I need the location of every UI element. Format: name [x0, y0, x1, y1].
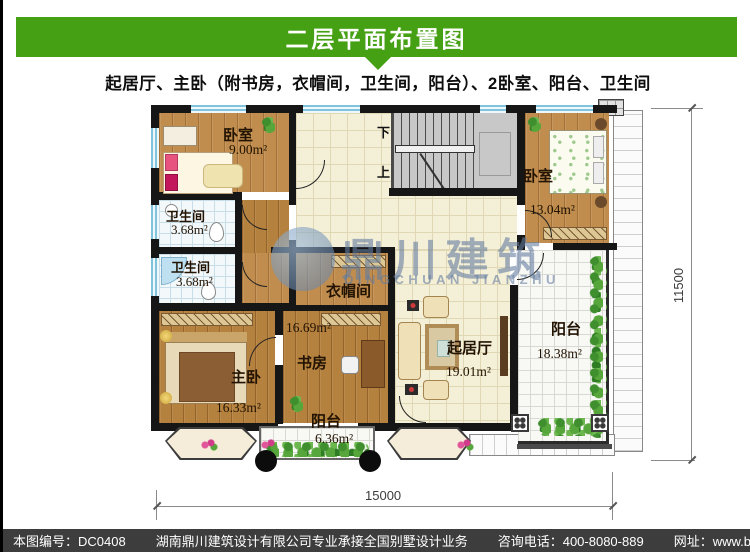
wall-bedroomtr-left-a: [517, 105, 525, 205]
window-left-3: [151, 258, 159, 296]
wardrobe-hatch-cloak: [331, 255, 386, 268]
column-circle: [359, 450, 381, 472]
column-marker: [511, 414, 529, 432]
wardrobe-hatch-bedroom-tr: [543, 227, 607, 240]
wall-hall-divider-upper: [289, 105, 296, 205]
toilet: [209, 222, 224, 242]
wall-study-living: [388, 247, 395, 424]
wall-master-study-b: [275, 365, 283, 424]
plant-icon: [527, 117, 542, 132]
wall-cloak-study: [290, 305, 394, 311]
tv-cabinet: [500, 316, 508, 376]
room-area-balcony-bottom: 6.36m²: [315, 431, 353, 447]
side-table-plant: [407, 300, 419, 311]
sofa-chair: [423, 296, 449, 318]
rug: [203, 164, 243, 188]
bed-pillow: [593, 136, 604, 158]
wall-bedroomtr-bottom: [553, 243, 617, 250]
room-area-bedroom-tl: 9.00m²: [229, 142, 267, 158]
floor-plan-page: 二层平面布置图 起居厅、主卧（附书房，衣帽间，卫生间，阳台）、2卧室、阳台、卫生…: [0, 0, 750, 552]
wall-bedroomtr-left-b: [517, 235, 525, 250]
website: 网址：www.bstzcs.com: [674, 531, 750, 550]
bed-master-headboard: [165, 332, 247, 343]
room-label-master: 主卧: [231, 366, 261, 387]
room-area-master: 16.33m²: [216, 400, 261, 416]
stair-landing-outline: [479, 132, 511, 176]
dim-line-bottom: [156, 506, 613, 507]
room-area-study: 16.69m²: [286, 320, 331, 336]
wardrobe-hatch-master: [161, 313, 253, 326]
railing-balcony-bottom: [517, 444, 612, 449]
nightstand: [595, 118, 607, 130]
sofa-chair: [423, 380, 449, 400]
flower-icon: [455, 438, 475, 452]
wall-cloak-top: [271, 247, 394, 253]
dim-height-label: 11500: [671, 268, 686, 303]
sofa-long: [398, 322, 421, 380]
dresser: [163, 126, 197, 146]
room-label-cloakroom: 衣帽间: [326, 280, 371, 301]
dim-ext-bottom-right: [612, 472, 613, 520]
column-marker: [591, 414, 609, 432]
bed-pillow: [165, 154, 178, 171]
window-left-2: [151, 205, 159, 239]
flower-icon: [199, 438, 219, 452]
dim-width-label: 15000: [365, 488, 401, 503]
window-top-2: [303, 105, 360, 113]
dim-tick: [609, 502, 617, 510]
stairs-up-label: 上: [377, 162, 390, 181]
room-label-balcony-right: 阳台: [551, 318, 581, 339]
side-table-plant: [405, 384, 418, 395]
room-area-bath1: 3.68m²: [171, 222, 208, 238]
dim-line-right: [691, 108, 692, 460]
stair-handrail: [395, 145, 475, 153]
room-label-balcony-bottom: 阳台: [311, 410, 341, 431]
title-banner: 二层平面布置图: [16, 17, 737, 57]
phone-number: 咨询电话：400-8080-889: [498, 531, 644, 550]
stairs-down-label: 下: [377, 122, 390, 141]
room-label-living: 起居厅: [447, 337, 492, 358]
dim-ext-right-top: [651, 108, 703, 109]
plant-icon: [261, 117, 277, 133]
page-title: 二层平面布置图: [286, 20, 468, 54]
wall-master-study-a: [275, 311, 283, 335]
right-eave: [613, 110, 643, 452]
drawing-number: 本图编号：DC0408: [13, 531, 126, 550]
room-area-bedroom-tr: 13.04m²: [530, 202, 575, 218]
wall-stairs-bottom: [389, 188, 517, 196]
column-circle: [255, 450, 277, 472]
room-area-bath2: 3.68m²: [176, 274, 213, 290]
stair-edge-line: [391, 110, 393, 188]
wall-living-balcony: [510, 285, 518, 424]
bed-pillow: [165, 174, 178, 191]
room-label-bedroom-tr: 卧室: [523, 165, 553, 186]
window-top-1: [191, 105, 246, 113]
desk: [361, 340, 385, 388]
balcony-right-plants-strip: [589, 256, 607, 438]
bed-master-blanket: [179, 352, 235, 402]
banner-arrow-icon: [365, 57, 391, 70]
wall-bath1-bath2: [151, 247, 242, 254]
balcony-right-plants-bottom: [537, 418, 599, 436]
company-name: 湖南鼎川建筑设计有限公司专业承接全国别墅设计业务: [156, 531, 468, 550]
window-top-3: [480, 105, 506, 113]
lamp: [160, 330, 172, 342]
room-label-study: 书房: [297, 352, 327, 373]
room-area-balcony-right: 18.38m²: [537, 346, 582, 362]
bed-pillow: [593, 162, 604, 184]
nightstand: [595, 196, 607, 208]
window-left-1: [151, 128, 159, 168]
footer-bar: 本图编号：DC0408 湖南鼎川建筑设计有限公司专业承接全国别墅设计业务 咨询电…: [3, 529, 750, 552]
room-area-living: 19.01m²: [446, 364, 491, 380]
desk-chair: [341, 356, 359, 374]
wall-master-top: [151, 303, 290, 311]
window-top-4: [536, 105, 593, 113]
plan-subtitle: 起居厅、主卧（附书房，衣帽间，卫生间，阳台）、2卧室、阳台、卫生间: [3, 70, 750, 94]
plant-icon: [289, 396, 305, 412]
lamp: [160, 392, 172, 404]
